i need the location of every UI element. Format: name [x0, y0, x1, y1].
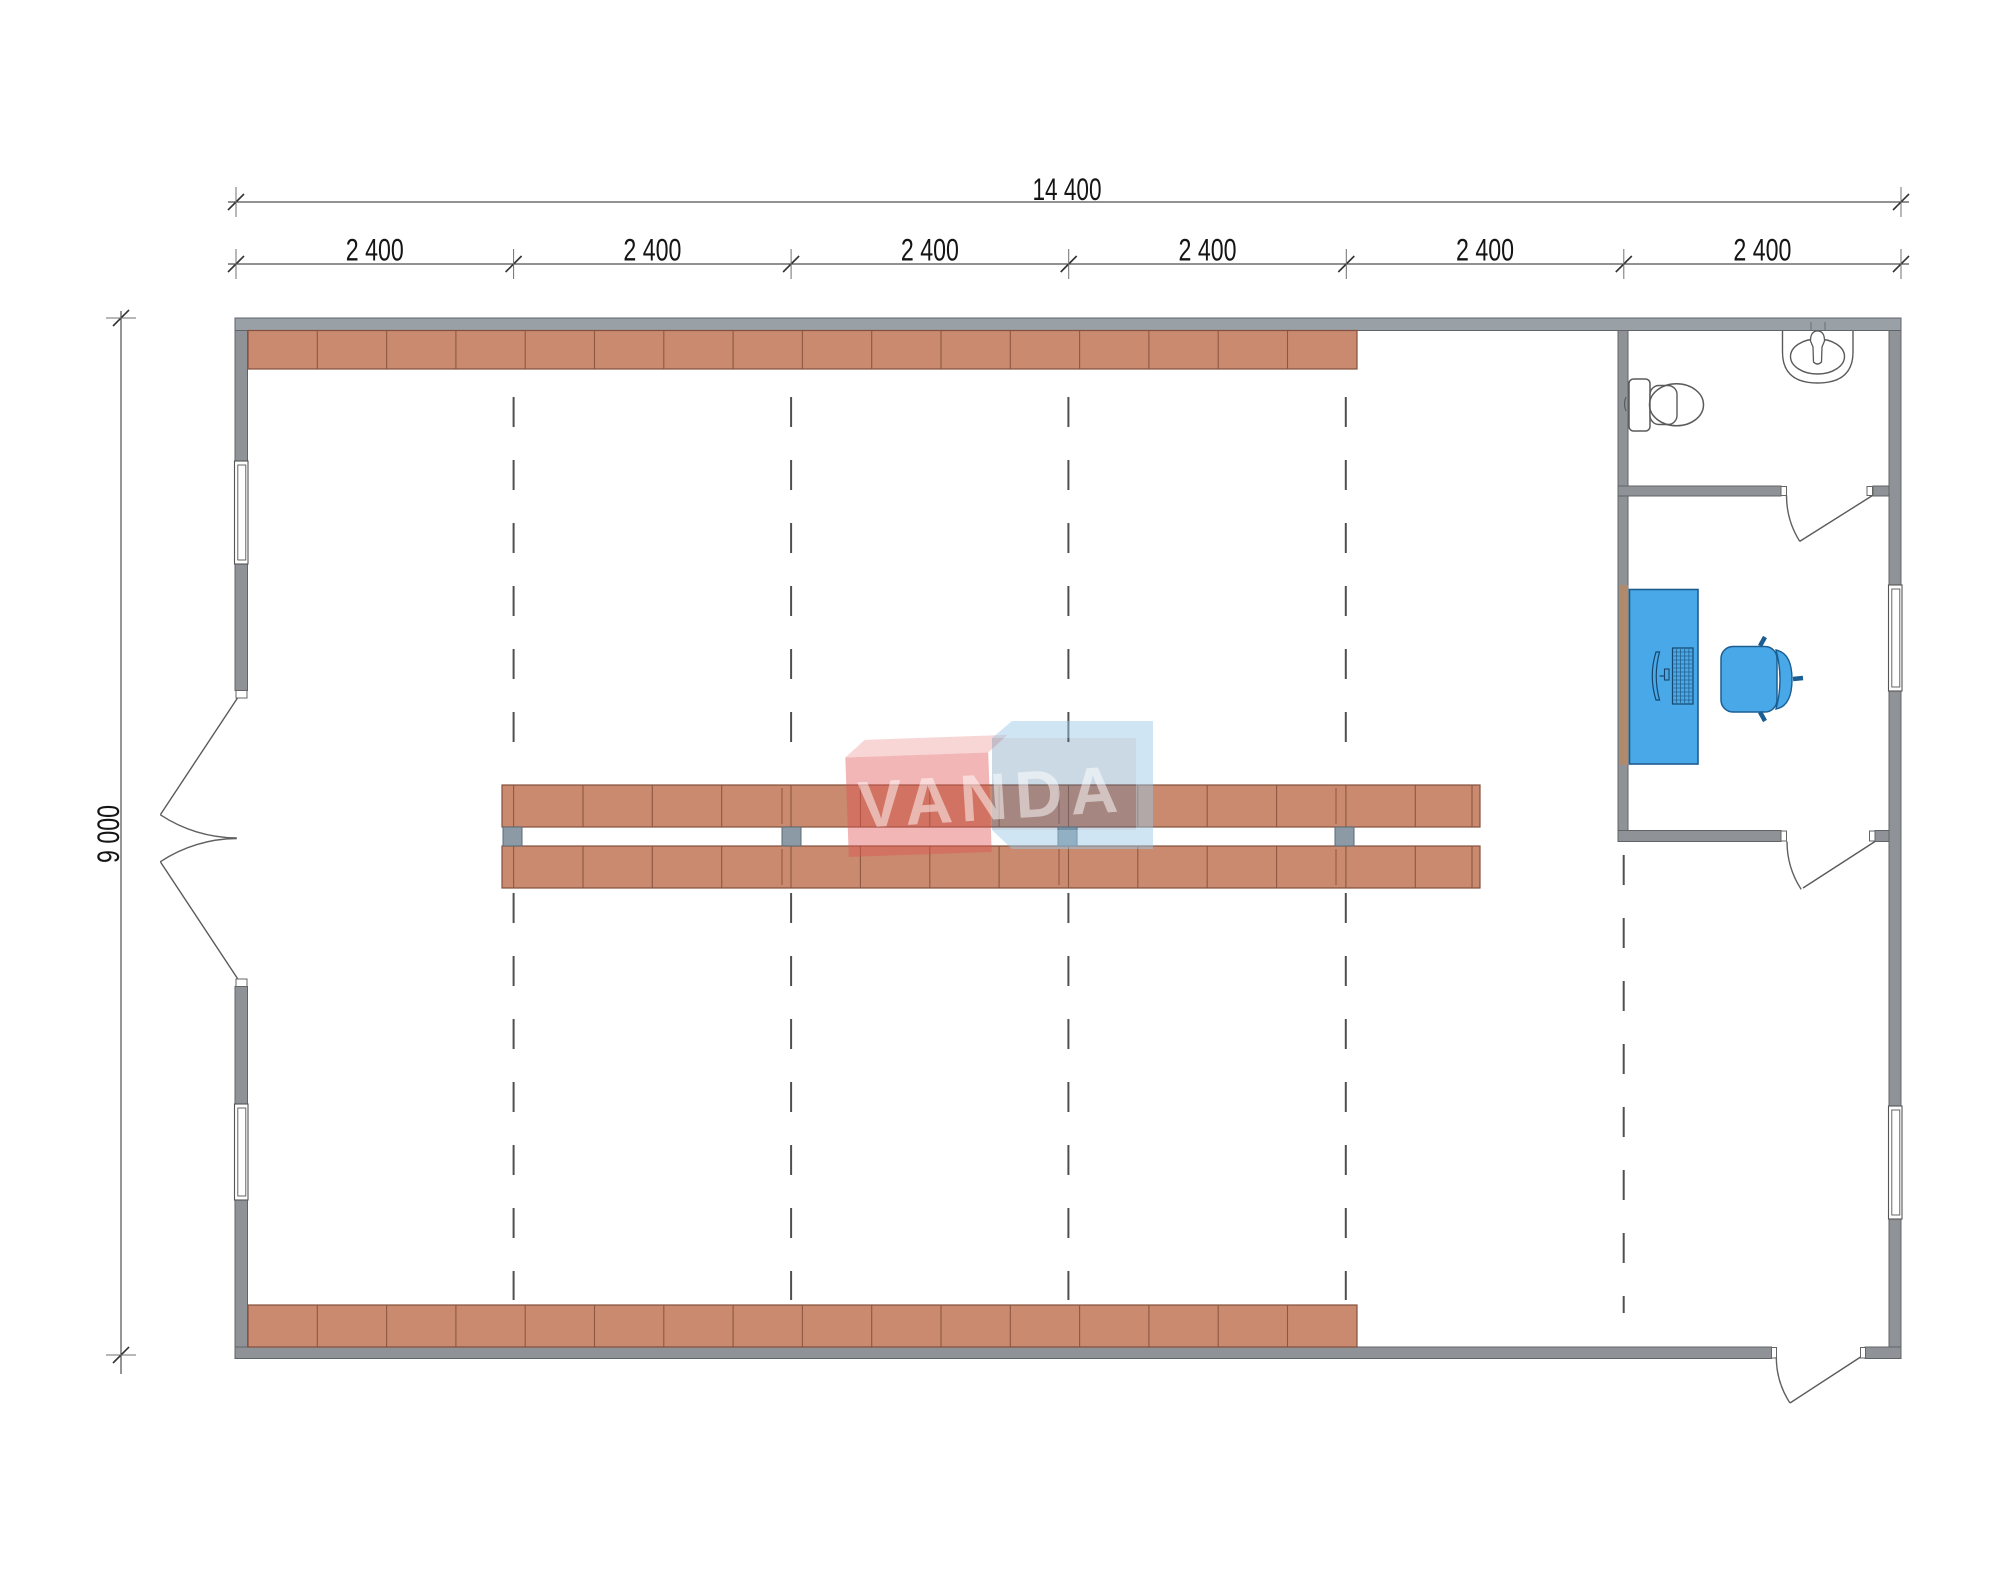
svg-text:14 400: 14 400: [1033, 171, 1102, 207]
svg-text:2 400: 2 400: [901, 232, 959, 268]
svg-text:9 000: 9 000: [90, 805, 126, 863]
svg-text:2 400: 2 400: [623, 232, 681, 268]
svg-text:2 400: 2 400: [1456, 232, 1514, 268]
svg-text:2 400: 2 400: [1179, 232, 1237, 268]
svg-text:2 400: 2 400: [1733, 232, 1791, 268]
svg-text:2 400: 2 400: [346, 232, 404, 268]
